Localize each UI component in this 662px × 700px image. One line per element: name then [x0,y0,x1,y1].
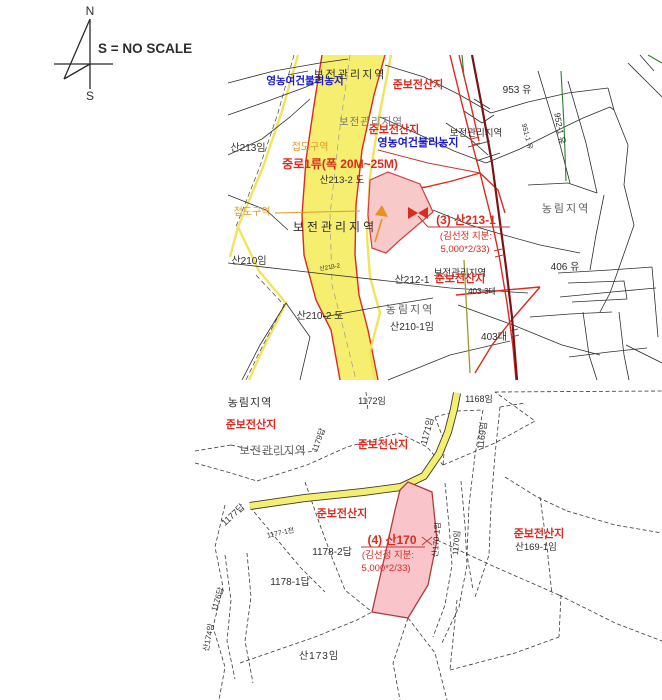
label-target3-share: 5,000*2/33) [440,244,489,255]
label-p1177-1: 1177-1전 [266,525,295,540]
label-p403: 403대 [481,331,507,343]
parcel-lines-b-bottom [240,540,662,700]
map-top: 영농여건불리농지 보전관리지역 준보전산지 보전관리지역 준보전산지 영농여건불… [228,55,662,380]
label-b-forest-zone: 농림지역 [228,396,272,409]
label-p1179: 1179답 [309,426,327,453]
red-road-branch-right [480,173,505,213]
label-semi-forest-low: 준보전산지 [435,271,486,285]
label-san213: 산213임 [230,141,265,154]
label-road-class: 중로1류(폭 20M~25M) [282,157,398,171]
parcel-lines-b-center [250,481,467,645]
label-b-semi-forest-right: 준보전산지 [514,526,565,540]
label-p1178-1: 1178-1답 [270,576,310,588]
cadastral-map-document: N S S = NO SCALE [0,0,662,700]
label-target3-owner: (김선정 지분: [440,230,492,242]
label-p1169: 1169임 [474,421,489,450]
label-p1172: 1172임 [358,395,386,406]
label-p403-3: 403-3대 [468,287,496,296]
label-p1176: 1176답 [209,585,226,612]
label-p1168: 1168임 [465,393,493,404]
label-target4-owner: (김선정 지분: [362,549,414,561]
label-san213-2: 산213-2 도 [320,175,365,186]
label-b-mgmt-zone: 보전관리지역 [240,444,307,457]
map-svg: N S S = NO SCALE [0,0,662,700]
label-p953: 953 유 [503,84,532,96]
label-p952-1: 952-1 유 [552,112,567,145]
compass: N S S = NO SCALE [54,4,192,103]
compass-north-label: N [86,4,95,18]
map-bottom: 농림지역 준보전산지 보전관리지역 1179답 1172임 준보전산지 1171… [195,391,662,700]
label-target3-no: (3) 산213-1 [436,212,496,227]
label-san169-1: 산169-1임 [515,541,557,553]
label-san212-1: 산212-1 [395,274,430,286]
label-p951-1: 951-1 유 [520,123,535,151]
label-b-semi-forest-mid: 준보전산지 [358,437,409,451]
label-p406: 406 유 [551,261,580,273]
compass-south-label: S [86,89,94,103]
label-forest-zone-right: 농림지역 [542,202,590,215]
label-semi-forest-mid: 준보전산지 [369,122,420,136]
label-mgmt-zone-right: 보전관리지역 [450,128,502,139]
red-road-lower [456,287,540,373]
label-san173: 산173임 [299,649,339,662]
label-b-semi-forest-left: 준보전산지 [226,417,277,431]
label-b-semi-forest-road: 준보전산지 [317,506,368,520]
label-target4-share: 5,000*2/33) [361,563,410,574]
label-target4-no: (4) 산170 [367,532,416,547]
label-p1178-2: 1178-2답 [312,546,352,558]
label-mgmt-zone-top: 보전관리지역 [314,68,387,81]
label-semi-forest-top: 준보전산지 [393,77,444,91]
label-forest-zone-bottom: 농림지역 [386,303,434,316]
scale-note: S = NO SCALE [98,41,192,56]
label-agri-zone-mid: 영농여건불리농지 [378,135,459,149]
label-jeopdo-left: 접도구역 [234,206,271,218]
label-mgmt-zone-low: 보전관리지역 [293,220,377,234]
label-jeopdo-top: 접도구역 [292,141,329,153]
label-p1171: 1171임 [418,416,436,446]
parcel-lines-b-right [435,403,662,597]
label-p1170: 1170임 [451,530,462,555]
label-san210-1: 산210-1임 [390,320,434,333]
label-san210-2: 산210-2 도 [297,310,344,322]
label-san210: 산210임 [231,254,266,267]
label-san174: 산174임 [200,623,216,653]
